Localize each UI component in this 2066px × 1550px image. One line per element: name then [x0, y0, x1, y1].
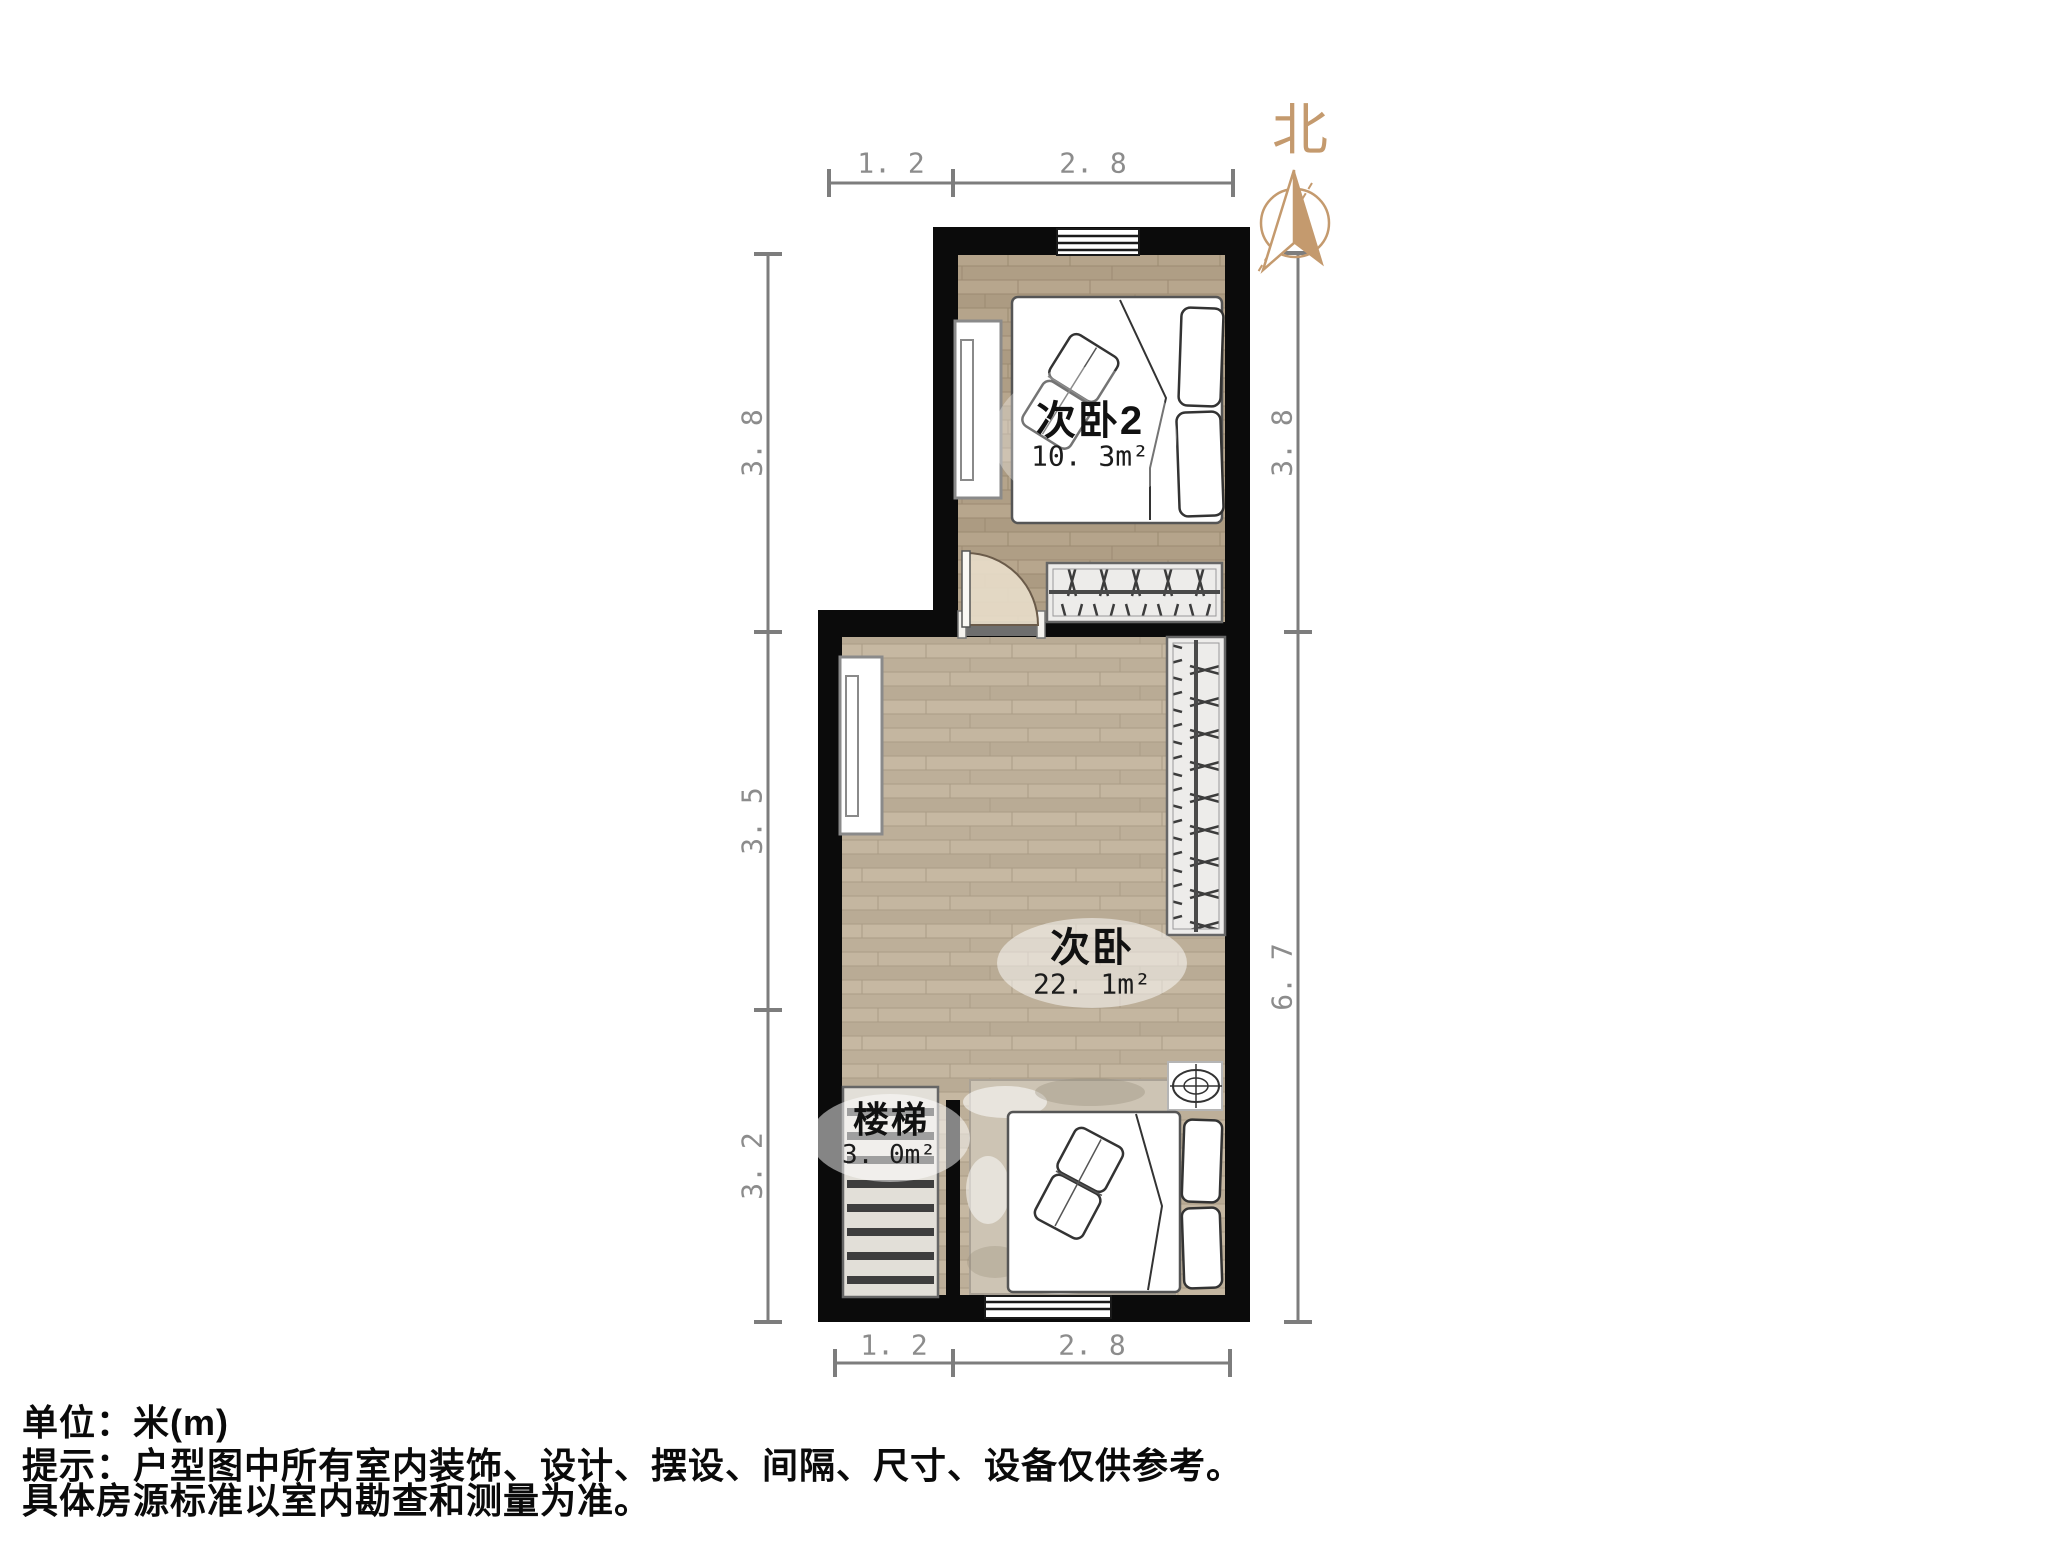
pillow-icon — [1182, 1119, 1223, 1202]
room-area-bedroom2: 10. 3m² — [1031, 440, 1149, 473]
room-label-bedroom: 次卧 — [1050, 915, 1134, 973]
room-area-stairs: 3. 0m² — [842, 1140, 936, 1170]
window-top — [1057, 229, 1139, 255]
dim-left-3: 3. 2 — [736, 1132, 769, 1199]
north-label: 北 — [1272, 86, 1328, 167]
room-label-bedroom2: 次卧2 — [1036, 388, 1144, 446]
north-compass-icon — [1258, 170, 1329, 272]
pillow-icon — [1178, 307, 1223, 406]
wardrobe-bedroom2 — [1047, 563, 1222, 622]
room-label-stairs: 楼梯 — [853, 1091, 929, 1143]
dim-top-1: 1. 2 — [857, 147, 924, 180]
pillow-icon — [1182, 1207, 1223, 1288]
dim-right-1: 3. 8 — [1266, 409, 1299, 476]
dim-bottom-1: 1. 2 — [860, 1329, 927, 1362]
dim-top-2: 2. 8 — [1059, 147, 1126, 180]
fixture-symbol-icon — [1168, 1062, 1222, 1110]
floor-plan-page: 北 1. 2 2. 8 1. 2 2. 8 3. 8 3. 5 3. 2 3. … — [0, 0, 2066, 1550]
window-bottom — [985, 1296, 1111, 1318]
window-bedroom-left — [840, 657, 882, 834]
dim-bottom-2: 2. 8 — [1058, 1329, 1125, 1362]
wardrobe-bedroom — [1167, 637, 1225, 935]
dim-left-2: 3. 5 — [736, 787, 769, 854]
floor-plan-drawing — [0, 0, 2066, 1550]
dim-left-1: 3. 8 — [736, 409, 769, 476]
room-area-bedroom: 22. 1m² — [1033, 968, 1151, 1001]
window-bedroom2-left — [955, 321, 1001, 498]
dim-right-2: 6. 7 — [1266, 943, 1299, 1010]
pillow-icon — [1176, 411, 1224, 516]
footer-disclaimer-2: 具体房源标准以室内勘查和测量为准。 — [22, 1472, 651, 1524]
bed-bedroom — [1008, 1112, 1222, 1292]
